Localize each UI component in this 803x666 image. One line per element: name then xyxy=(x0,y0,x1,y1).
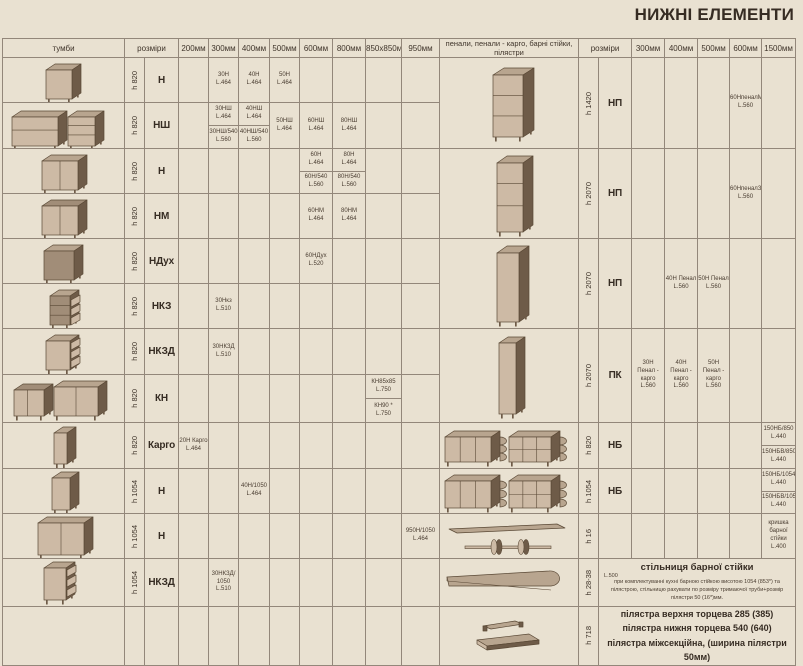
type-label: НБ xyxy=(599,469,632,514)
col-header-rozmiry-left: розміри xyxy=(125,39,179,58)
type-label: НШ xyxy=(145,103,179,149)
table-row: h 820Карго20Н КаргоL.464h 820НБ150НБ/850… xyxy=(3,423,796,469)
spec-cell xyxy=(179,284,209,329)
spec-cell: 80НМL.464 xyxy=(333,194,366,239)
spec-cell xyxy=(209,607,239,666)
spec-cell xyxy=(402,559,440,607)
spec-cell: 60НпеналМL.560 xyxy=(730,58,762,149)
tall-door1-drawing xyxy=(3,469,125,514)
spec-cell: 30НL.464 xyxy=(209,58,239,103)
spec-cell xyxy=(300,329,333,375)
spec-cell xyxy=(333,239,366,284)
col-header-950: 950мм xyxy=(402,39,440,58)
spec-cell xyxy=(730,469,762,514)
col-header-r400: 400мм xyxy=(665,39,698,58)
oven-open-drawing xyxy=(3,239,125,284)
spec-cell xyxy=(270,423,300,469)
spec-cell xyxy=(730,329,762,423)
height-label: h 820 xyxy=(125,329,145,375)
height-label: h 820 xyxy=(125,239,145,284)
spec-cell xyxy=(179,469,209,514)
col-header-penaly: пенали, пенали - карго, барні стійки, пі… xyxy=(440,39,579,58)
height-label: h 1054 xyxy=(579,469,599,514)
spec-cell xyxy=(270,329,300,375)
base-door2-drawing xyxy=(3,149,125,194)
spec-cell: 40Н/1050L.464 xyxy=(239,469,270,514)
spec-cell xyxy=(730,239,762,329)
cargo-shelves-drawing xyxy=(3,284,125,329)
door-baskets-drawing xyxy=(3,329,125,375)
spec-cell xyxy=(698,149,730,239)
spec-cell xyxy=(762,149,796,239)
spec-cell xyxy=(239,375,270,423)
spec-cell xyxy=(632,469,665,514)
height-label: h 1054 xyxy=(125,514,145,559)
type-label: Н xyxy=(145,469,179,514)
spec-cell xyxy=(239,194,270,239)
spec-cell: 50НПенал - каргоL.560 xyxy=(698,329,730,423)
spec-cell xyxy=(366,607,402,666)
height-label: h 820 xyxy=(125,149,145,194)
spec-cell xyxy=(366,58,402,103)
type-label: НП xyxy=(599,149,632,239)
type-label: Карго xyxy=(145,423,179,469)
spec-cell xyxy=(239,559,270,607)
sink-door2-drawing xyxy=(3,194,125,239)
spec-cell: КН85х85L.750КН90 *L.750 xyxy=(366,375,402,423)
height-label: h 820 xyxy=(125,284,145,329)
spec-cell xyxy=(366,239,402,284)
spec-cell xyxy=(402,469,440,514)
page-title: НИЖНІ ЕЛЕМЕНТИ xyxy=(635,5,794,25)
type-label: КН xyxy=(145,375,179,423)
spec-cell xyxy=(239,149,270,194)
table-row: h 1054Н40Н/1050L.464h 1054НБ150НБ/1054L.… xyxy=(3,469,796,514)
spec-cell: 60НпеналЗL.560 xyxy=(730,149,762,239)
tall-door2-drawing xyxy=(3,514,125,559)
spec-cell xyxy=(270,514,300,559)
spec-cell: 20Н КаргоL.464 xyxy=(179,423,209,469)
col-header-600: 600мм xyxy=(300,39,333,58)
pair-drawers-drawing xyxy=(3,103,125,149)
spec-cell xyxy=(665,423,698,469)
bar-countertop-note-cell: стільниця барної стійкиL.500при комплект… xyxy=(599,559,796,607)
col-header-tumby: тумби xyxy=(3,39,125,58)
spec-cell xyxy=(179,607,209,666)
spec-cell xyxy=(333,514,366,559)
height-label: h 820 xyxy=(125,423,145,469)
empty-drawing xyxy=(3,607,125,666)
spec-cell xyxy=(402,103,440,149)
pilasters-drawing xyxy=(440,607,579,666)
spec-cell xyxy=(179,239,209,284)
tall-baskets-drawing xyxy=(3,559,125,607)
spec-cell xyxy=(402,58,440,103)
spec-cell xyxy=(402,194,440,239)
col-header-300: 300мм xyxy=(209,39,239,58)
spec-cell xyxy=(333,329,366,375)
spec-cell xyxy=(300,375,333,423)
spec-cell: 60НМL.464 xyxy=(300,194,333,239)
table-row: h 820НДух60НДухL.520h 2070НП40Н ПеналL.5… xyxy=(3,239,796,284)
header-row: тумби розміри 200мм 300мм 400мм 500мм 60… xyxy=(3,39,796,58)
table-row: h 820Н60НL.46460Н/540L.56080НL.46480Н/54… xyxy=(3,149,796,194)
cargo-narrow-drawing xyxy=(3,423,125,469)
penal-door-drawing xyxy=(440,239,579,329)
spec-cell: 40Н ПеналL.560 xyxy=(665,239,698,329)
spec-cell xyxy=(239,514,270,559)
height-label xyxy=(125,607,145,666)
col-header-r300: 300мм xyxy=(632,39,665,58)
spec-cell xyxy=(300,469,333,514)
spec-cell xyxy=(698,469,730,514)
spec-cell xyxy=(179,375,209,423)
spec-cell: 30НШL.46430НШ/540L.560 xyxy=(209,103,239,149)
spec-cell xyxy=(366,329,402,375)
spec-cell xyxy=(402,149,440,194)
spec-cell xyxy=(333,559,366,607)
spec-cell xyxy=(762,58,796,149)
spec-cell: 50НL.464 xyxy=(270,58,300,103)
spec-cell: 950Н/1050L.464 xyxy=(402,514,440,559)
spec-cell: 150НБ/1054L.440150НБВ/1054L.440 xyxy=(762,469,796,514)
spec-cell: 30НПенал - каргоL.560 xyxy=(632,329,665,423)
spec-cell xyxy=(270,239,300,284)
height-label: h 820 xyxy=(125,103,145,149)
spec-cell xyxy=(209,469,239,514)
type-label: НП xyxy=(599,239,632,329)
col-header-800: 800мм xyxy=(333,39,366,58)
spec-cell xyxy=(333,607,366,666)
spec-cell xyxy=(333,284,366,329)
type-label: НДух xyxy=(145,239,179,284)
spec-cell xyxy=(239,329,270,375)
spec-cell xyxy=(239,607,270,666)
spec-cell xyxy=(366,149,402,194)
type-label: НБ xyxy=(599,423,632,469)
col-header-r500: 500мм xyxy=(698,39,730,58)
type-label: НКЗ xyxy=(145,284,179,329)
type-label: НП xyxy=(599,58,632,149)
type-label xyxy=(145,607,179,666)
spec-cell xyxy=(665,149,698,239)
type-label xyxy=(599,514,632,559)
spec-cell: 80НШL.464 xyxy=(333,103,366,149)
height-label: h 820 xyxy=(125,194,145,239)
spec-cell: 50Н ПеналL.560 xyxy=(698,239,730,329)
corner-pair-drawing xyxy=(3,375,125,423)
spec-cell xyxy=(366,284,402,329)
height-label: h 1420 xyxy=(579,58,599,149)
spec-cell xyxy=(270,375,300,423)
spec-cell xyxy=(402,239,440,284)
type-label: НМ xyxy=(145,194,179,239)
height-label: h 2070 xyxy=(579,149,599,239)
spec-cell xyxy=(333,58,366,103)
spec-cell xyxy=(209,423,239,469)
spec-cell xyxy=(366,514,402,559)
spec-cell: 80НL.46480Н/540L.560 xyxy=(333,149,366,194)
spec-cell xyxy=(632,514,665,559)
spec-cell xyxy=(333,423,366,469)
bar-1054-drawing xyxy=(440,469,579,514)
spec-cell xyxy=(209,149,239,194)
spec-cell xyxy=(209,194,239,239)
penal-cargo-drawing xyxy=(440,329,579,423)
height-label: h 1054 xyxy=(125,559,145,607)
spec-cell xyxy=(366,469,402,514)
spec-cell: 40НL.464 xyxy=(239,58,270,103)
spec-cell xyxy=(239,284,270,329)
spec-cell xyxy=(698,423,730,469)
spec-cell xyxy=(762,239,796,329)
bar-top-drawing xyxy=(440,559,579,607)
spec-cell: 30НкзL.510 xyxy=(209,284,239,329)
spec-cell xyxy=(762,329,796,423)
col-header-rozmiry-right: розміри xyxy=(579,39,632,58)
col-header-r1500: 1500мм xyxy=(762,39,796,58)
spec-cell: 40НПенал - каргоL.560 xyxy=(665,329,698,423)
spec-cell xyxy=(270,149,300,194)
table-row: h 820НКЗД30НКЗДL.510h 2070ПК30НПенал - к… xyxy=(3,329,796,375)
spec-cell xyxy=(209,514,239,559)
spec-cell: 60НШL.464 xyxy=(300,103,333,149)
spec-cell: 40НШL.46440НШ/540L.560 xyxy=(239,103,270,149)
spec-cell: 50НШL.464 xyxy=(270,103,300,149)
spec-cell xyxy=(300,607,333,666)
spec-cell xyxy=(402,329,440,375)
table-row: h 820Н30НL.46440НL.46450НL.464h 1420НП60… xyxy=(3,58,796,103)
col-header-200: 200мм xyxy=(179,39,209,58)
spec-cell xyxy=(333,469,366,514)
spec-cell xyxy=(632,423,665,469)
spec-cell xyxy=(179,514,209,559)
col-header-850x850: 850х850мм xyxy=(366,39,402,58)
height-label: h 2070 xyxy=(579,329,599,423)
spec-cell xyxy=(730,423,762,469)
spec-cell xyxy=(270,284,300,329)
spec-cell xyxy=(179,194,209,239)
penal-m-drawing xyxy=(440,58,579,149)
spec-cell xyxy=(698,58,730,149)
spec-cell xyxy=(270,469,300,514)
spec-cell xyxy=(239,239,270,284)
catalog-table: тумби розміри 200мм 300мм 400мм 500мм 60… xyxy=(2,38,796,666)
col-header-r600: 600мм xyxy=(730,39,762,58)
spec-cell xyxy=(632,58,665,149)
type-label: ПК xyxy=(599,329,632,423)
spec-cell xyxy=(632,239,665,329)
spec-cell xyxy=(402,375,440,423)
spec-cell xyxy=(300,423,333,469)
bar-820-drawing xyxy=(440,423,579,469)
spec-cell: 30НКЗД/1050L.510 xyxy=(209,559,239,607)
pilaster-note-cell: пілястра верхня торцева 285 (385)пілястр… xyxy=(599,607,796,666)
spec-cell xyxy=(665,514,698,559)
spec-cell: 60НДухL.520 xyxy=(300,239,333,284)
height-label: h 820 xyxy=(579,423,599,469)
spec-cell xyxy=(665,469,698,514)
col-header-400: 400мм xyxy=(239,39,270,58)
spec-cell xyxy=(366,423,402,469)
height-label: h 820 xyxy=(125,58,145,103)
spec-cell xyxy=(366,559,402,607)
type-label: Н xyxy=(145,149,179,194)
spec-cell xyxy=(179,149,209,194)
height-label: h 718 xyxy=(579,607,599,666)
height-label: h 16 xyxy=(579,514,599,559)
spec-cell xyxy=(209,375,239,423)
table-row: h 1054Н950Н/1050L.464h 16кришка барноїст… xyxy=(3,514,796,559)
spec-cell xyxy=(179,58,209,103)
spec-cell: 60НL.46460Н/540L.560 xyxy=(300,149,333,194)
type-label: Н xyxy=(145,514,179,559)
spec-cell xyxy=(402,607,440,666)
spec-cell xyxy=(300,559,333,607)
spec-cell xyxy=(179,559,209,607)
penal-3-drawing xyxy=(440,149,579,239)
board-pipes-drawing xyxy=(440,514,579,559)
spec-cell xyxy=(333,375,366,423)
height-label: h 28-38 xyxy=(579,559,599,607)
spec-cell xyxy=(179,329,209,375)
table-row: h 718пілястра верхня торцева 285 (385)пі… xyxy=(3,607,796,666)
spec-cell xyxy=(270,559,300,607)
spec-cell xyxy=(270,194,300,239)
height-label: h 2070 xyxy=(579,239,599,329)
spec-cell xyxy=(300,514,333,559)
type-label: Н xyxy=(145,58,179,103)
spec-cell xyxy=(665,58,698,149)
type-label: НКЗД xyxy=(145,559,179,607)
base-door1-drawing xyxy=(3,58,125,103)
spec-cell xyxy=(300,284,333,329)
spec-cell: 30НКЗДL.510 xyxy=(209,329,239,375)
spec-cell xyxy=(179,103,209,149)
spec-cell xyxy=(239,423,270,469)
spec-cell xyxy=(270,607,300,666)
table-row: h 1054НКЗД30НКЗД/1050L.510h 28-38стільни… xyxy=(3,559,796,607)
height-label: h 1054 xyxy=(125,469,145,514)
spec-cell xyxy=(366,103,402,149)
spec-cell xyxy=(632,149,665,239)
spec-cell: кришка барноїстійкиL.400 xyxy=(762,514,796,559)
spec-cell xyxy=(698,514,730,559)
spec-cell xyxy=(300,58,333,103)
spec-cell xyxy=(402,284,440,329)
spec-cell xyxy=(402,423,440,469)
spec-cell xyxy=(366,194,402,239)
spec-cell: 150НБ/850L.440150НБВ/850L.440 xyxy=(762,423,796,469)
height-label: h 820 xyxy=(125,375,145,423)
type-label: НКЗД xyxy=(145,329,179,375)
col-header-500: 500мм xyxy=(270,39,300,58)
spec-cell xyxy=(730,514,762,559)
spec-cell xyxy=(209,239,239,284)
